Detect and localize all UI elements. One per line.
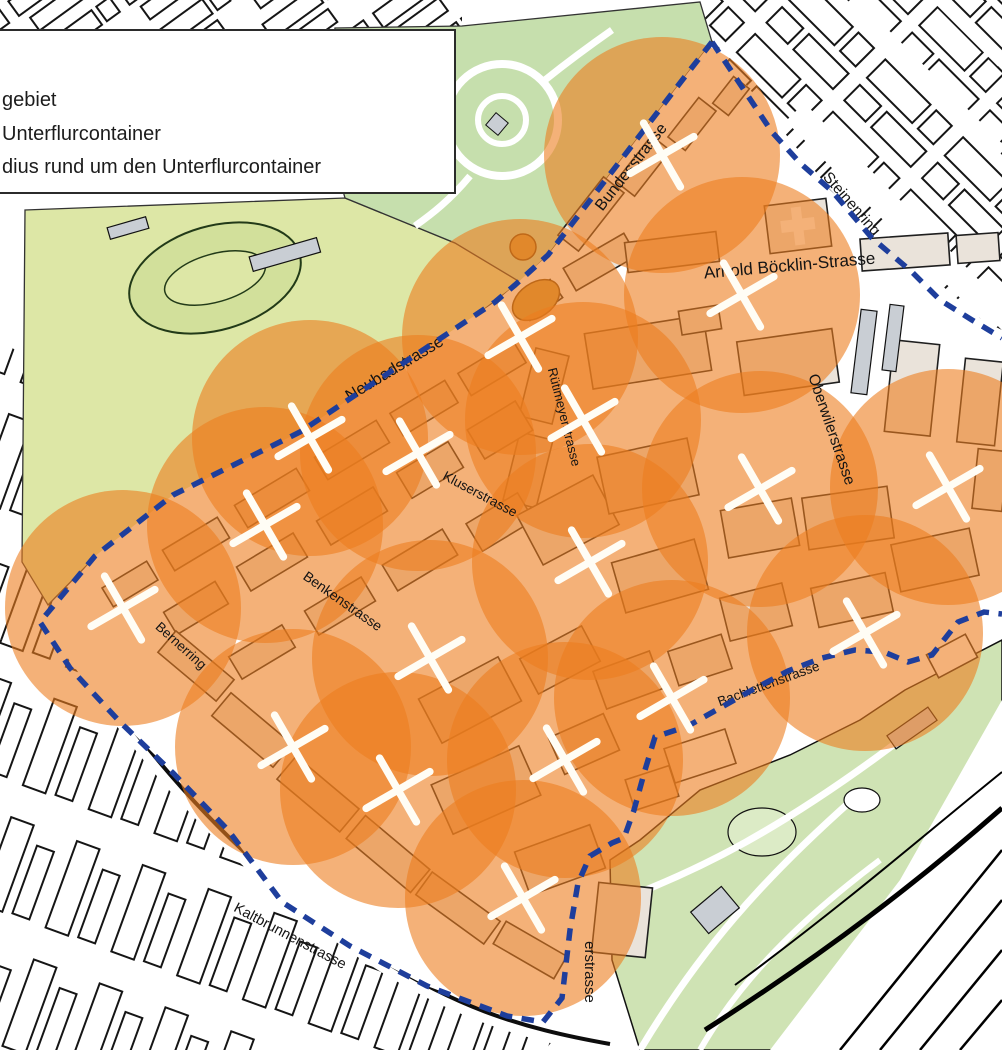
legend-item-pilot-area: gebiet <box>2 89 57 111</box>
street-label-erstrasse-fragment: erstrasse <box>581 941 598 1003</box>
legend: gebiet Unterflurcontainer dius rund um d… <box>0 30 455 193</box>
map-screenshot: Bundesstrasse Steinenring Arnold Böcklin… <box>0 0 1002 1050</box>
zoo-pond <box>844 788 880 812</box>
legend-item-radius: dius rund um den Unterflurcontainer <box>2 156 321 178</box>
map-canvas: Bundesstrasse Steinenring Arnold Böcklin… <box>0 0 1002 1050</box>
legend-item-container-location: Unterflurcontainer <box>2 123 161 145</box>
